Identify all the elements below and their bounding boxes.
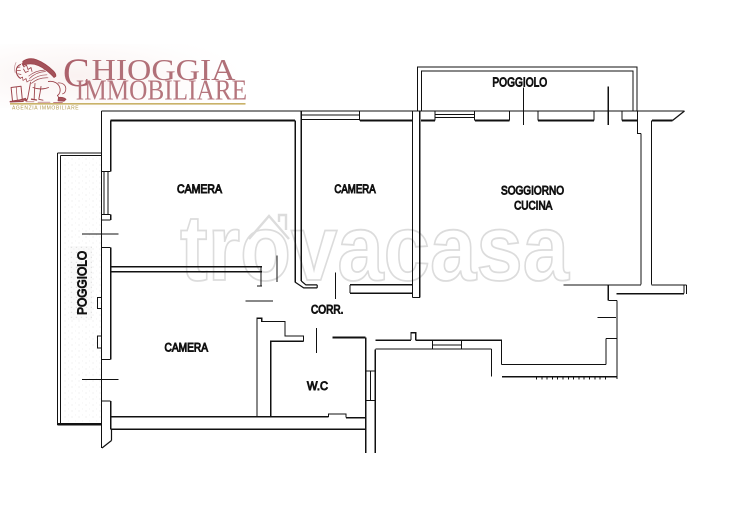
svg-text:CORR.: CORR. — [311, 305, 343, 317]
svg-text:CAMERA: CAMERA — [334, 182, 375, 196]
svg-text:IMMOBILIARE: IMMOBILIARE — [76, 76, 247, 107]
svg-text:W.C: W.C — [307, 379, 328, 393]
svg-text:POGGIOLO: POGGIOLO — [492, 74, 547, 89]
svg-text:CAMERA: CAMERA — [177, 182, 222, 196]
svg-text:SOGGIORNO: SOGGIORNO — [501, 184, 564, 198]
svg-text:POGGIOLO: POGGIOLO — [75, 251, 90, 315]
svg-text:CAMERA: CAMERA — [165, 340, 209, 354]
svg-text:CUCINA: CUCINA — [514, 198, 552, 212]
svg-text:AGENZIA IMMOBILIARE: AGENZIA IMMOBILIARE — [12, 106, 79, 112]
